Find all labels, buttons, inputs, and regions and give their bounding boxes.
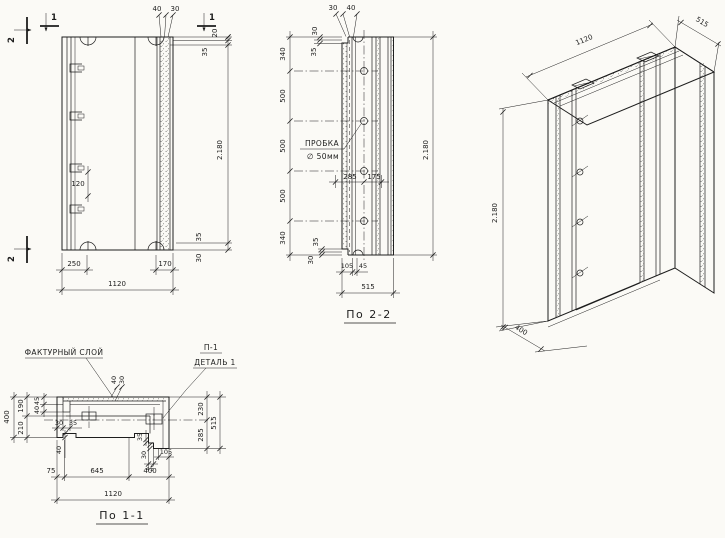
dim-iso-depth: 515 bbox=[675, 15, 721, 72]
detail-ref-label: П-1 bbox=[204, 343, 218, 352]
section-1-1-view: ФАКТУРНЫЙ СЛОЙ П-1 ДЕТАЛЬ 1 40 30 400 19… bbox=[3, 343, 237, 524]
plug-holes-iso bbox=[572, 115, 588, 278]
dim-text: 400 bbox=[3, 410, 11, 423]
dim-text: 400 bbox=[143, 467, 156, 475]
dim-text: 30 bbox=[311, 27, 319, 36]
dim-text: 500 bbox=[279, 189, 287, 202]
dim-text: 250 bbox=[67, 260, 80, 268]
dim-text: 35 bbox=[310, 48, 318, 57]
dim-front-bottom-small: 35 30 bbox=[173, 233, 232, 263]
front-elevation-view: 120 1 1 2 2 40 30 20 35 bbox=[7, 5, 232, 295]
dim-text: 35 bbox=[201, 48, 209, 57]
dim-front-height: 2.180 bbox=[216, 34, 231, 252]
section-mark-2-top: 2 bbox=[7, 17, 31, 44]
section-mark-1-left: 1 bbox=[40, 13, 59, 31]
dim-s22-bottom-small: 35 30 bbox=[307, 238, 342, 265]
dim-text: 285 bbox=[343, 173, 356, 181]
dim-text: 20 bbox=[211, 29, 219, 38]
plug-name: ПРОБКА bbox=[305, 139, 340, 148]
dim-text: 40 bbox=[153, 5, 162, 13]
dim-text: 30 bbox=[118, 376, 126, 384]
dim-text: 515 bbox=[694, 15, 710, 29]
dim-text: 40 bbox=[33, 406, 41, 414]
dim-text: 1120 bbox=[108, 280, 126, 288]
view-title: По 1-1 bbox=[99, 509, 144, 522]
dim-text: 35 bbox=[69, 419, 77, 427]
texture-layer-label: ФАКТУРНЫЙ СЛОЙ bbox=[25, 348, 104, 357]
dim-text: 175 bbox=[367, 173, 380, 181]
dim-front-bottom: 250 170 1120 bbox=[56, 253, 179, 295]
dim-text: 340 bbox=[279, 231, 287, 244]
dim-text: 35 bbox=[312, 238, 320, 247]
dim-text: 170 bbox=[158, 260, 171, 268]
dim-iso-base: 400 bbox=[496, 321, 587, 352]
dim-text: 2.180 bbox=[491, 203, 499, 223]
texture-layer-callout: ФАКТУРНЫЙ СЛОЙ bbox=[25, 348, 113, 397]
dim-text: 285 bbox=[197, 428, 205, 441]
dim-text: 230 bbox=[197, 402, 205, 415]
dim-front-right-small: 20 35 bbox=[170, 29, 232, 57]
section-2-2-view: 340 500 500 500 340 30 35 30 40 ПРОБКА ∅… bbox=[279, 4, 437, 323]
dim-text: 2.180 bbox=[422, 140, 430, 160]
dim-text: 45 bbox=[33, 397, 41, 405]
dim-text: 30 bbox=[329, 4, 338, 12]
dim-iso-height: 2.180 bbox=[491, 100, 548, 331]
dim-text: 75 bbox=[47, 467, 56, 475]
embed-detail-p1 bbox=[146, 407, 162, 430]
dim-front-top: 40 30 bbox=[153, 5, 180, 37]
section-mark-label: 2 bbox=[7, 37, 17, 43]
dim-text: 30 bbox=[55, 419, 63, 427]
dim-text: 105 bbox=[160, 448, 172, 456]
dim-text: 30 bbox=[195, 254, 203, 263]
dim-text: 645 bbox=[90, 467, 103, 475]
embed-detail bbox=[82, 406, 96, 428]
lifting-loops bbox=[80, 37, 164, 250]
dim-text: 515 bbox=[210, 416, 218, 429]
drawing-canvas: 120 1 1 2 2 40 30 20 35 bbox=[0, 0, 725, 538]
axonometric-view: 1120 515 2.180 400 bbox=[491, 15, 721, 352]
dim-s22-top: 30 40 bbox=[329, 4, 360, 37]
dim-text: 1120 bbox=[574, 33, 594, 47]
dim-text: 30 bbox=[307, 256, 315, 265]
dim-text: 30 bbox=[140, 451, 148, 459]
section-mark-1-right: 1 bbox=[197, 13, 216, 31]
dim-text: 30 bbox=[171, 5, 180, 13]
section-2-2-title: По 2-2 bbox=[344, 308, 396, 323]
dim-text: 105 bbox=[341, 262, 353, 270]
dim-text: 35 bbox=[195, 233, 203, 242]
dim-text: 210 bbox=[17, 421, 25, 434]
dim-text: 2.180 bbox=[216, 140, 224, 160]
section-mark-label: 1 bbox=[209, 13, 215, 23]
edge-embeds bbox=[70, 64, 84, 213]
dim-text: 190 bbox=[17, 399, 25, 412]
dim-embed-spacing: 120 bbox=[71, 166, 90, 202]
dim-text: 515 bbox=[361, 283, 374, 291]
dim-s11-bottom: 75 645 400 1120 bbox=[47, 438, 175, 505]
dim-s22-top-small: 30 35 bbox=[310, 27, 342, 57]
section-mark-label: 2 bbox=[7, 256, 17, 262]
section-mark-2-bottom: 2 bbox=[7, 236, 31, 263]
dim-text: 340 bbox=[279, 47, 287, 60]
dim-text: 45 bbox=[359, 262, 367, 270]
dim-text: 500 bbox=[279, 89, 287, 102]
drawing-sheet: 120 1 1 2 2 40 30 20 35 bbox=[0, 0, 725, 538]
dim-s22-bottom: 105 45 515 bbox=[336, 258, 400, 298]
detail-name-label: ДЕТАЛЬ 1 bbox=[194, 358, 235, 367]
dim-text: 40 bbox=[55, 446, 63, 454]
dim-text: 500 bbox=[279, 139, 287, 152]
dim-s22-height: 2.180 bbox=[394, 31, 438, 261]
dim-text: 1120 bbox=[104, 490, 122, 498]
dim-text: 35 bbox=[136, 433, 144, 441]
section-mark-label: 1 bbox=[51, 13, 57, 23]
dim-text: 40 bbox=[347, 4, 356, 12]
view-title: По 2-2 bbox=[346, 308, 391, 321]
plug-size: ∅ 50мм bbox=[307, 152, 339, 161]
dim-text: 120 bbox=[71, 180, 84, 188]
section-1-1-title: По 1-1 bbox=[96, 509, 148, 524]
dim-text: 40 bbox=[110, 376, 118, 384]
